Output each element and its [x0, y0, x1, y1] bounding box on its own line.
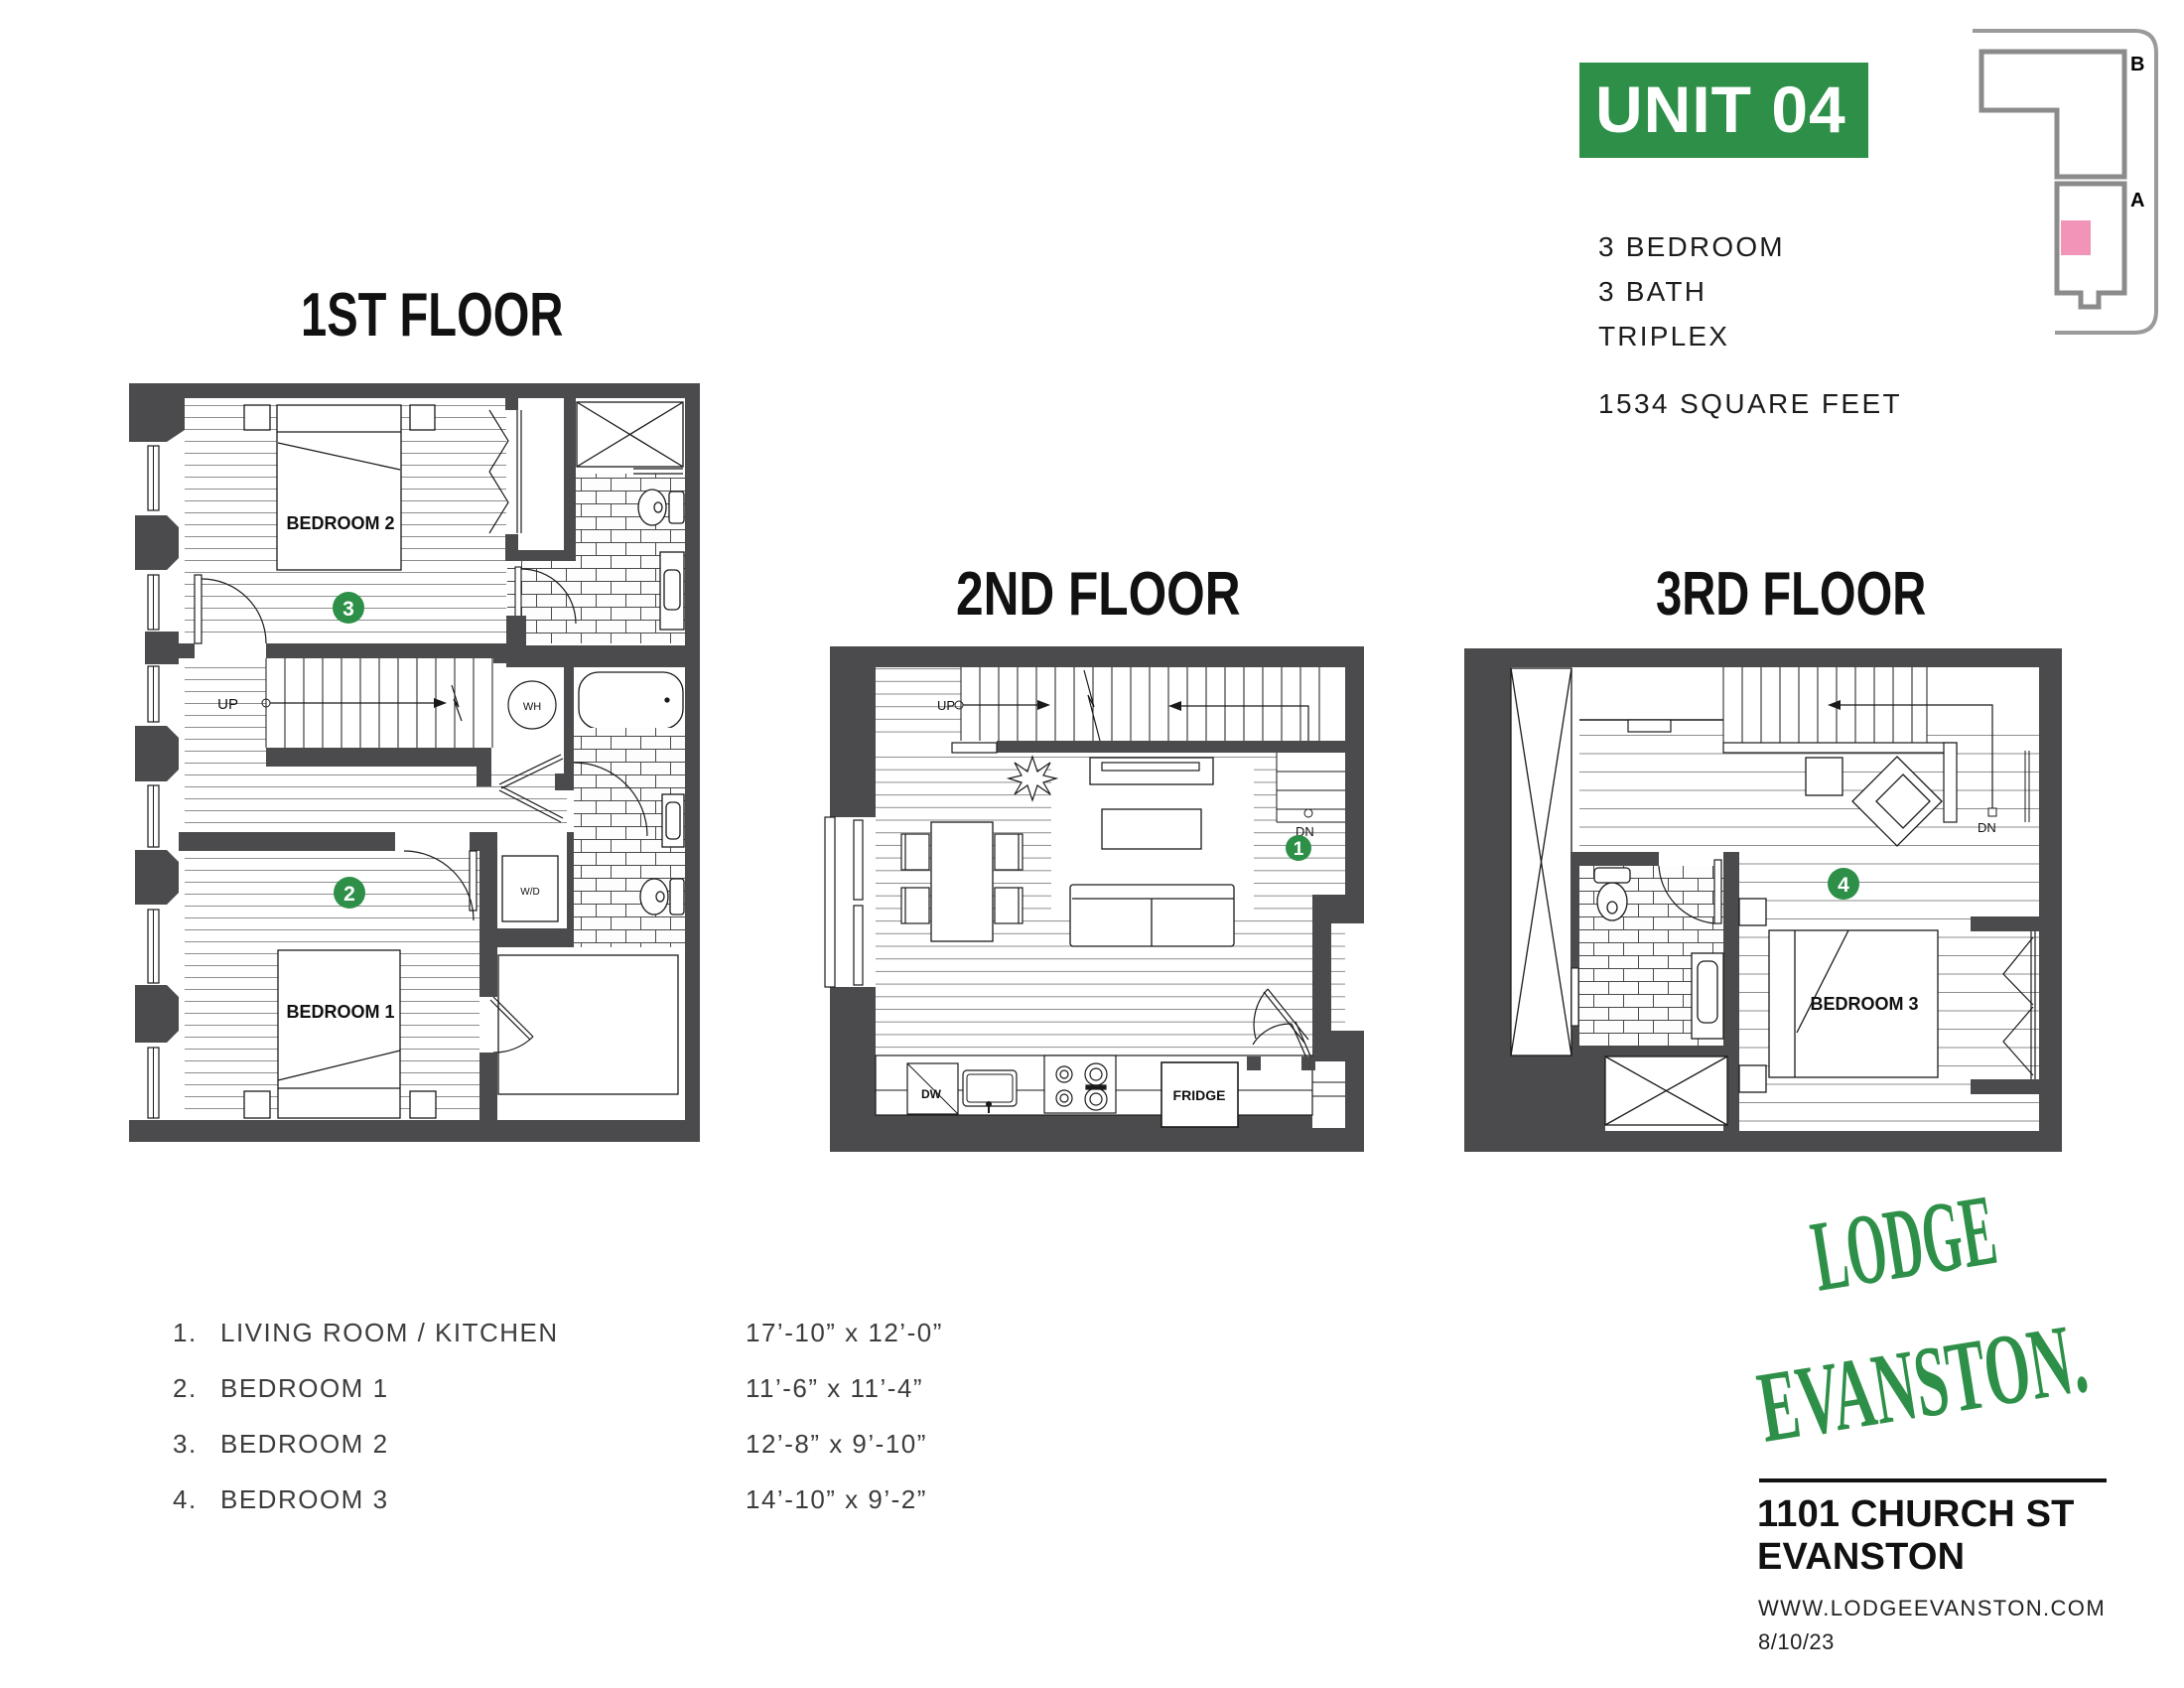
- svg-text:W/D: W/D: [520, 887, 539, 898]
- svg-text:2: 2: [343, 883, 355, 906]
- svg-text:4: 4: [1838, 874, 1849, 897]
- svg-text:LODGE: LODGE: [1805, 1174, 2003, 1313]
- svg-text:BEDROOM 3: BEDROOM 3: [1810, 994, 1918, 1014]
- svg-text:B: B: [2130, 54, 2144, 75]
- svg-text:DW: DW: [921, 1087, 942, 1101]
- svg-text:DN: DN: [1978, 820, 1996, 835]
- svg-text:BEDROOM 2: BEDROOM 2: [286, 513, 394, 533]
- svg-text:UP: UP: [937, 698, 955, 713]
- svg-text:UP: UP: [217, 696, 238, 713]
- svg-text:WH: WH: [523, 701, 541, 713]
- svg-text:EVANSTON.: EVANSTON.: [1751, 1301, 2094, 1463]
- svg-text:BEDROOM 1: BEDROOM 1: [286, 1002, 394, 1022]
- svg-text:1: 1: [1294, 839, 1304, 860]
- svg-text:3: 3: [342, 598, 354, 621]
- svg-text:A: A: [2130, 190, 2144, 211]
- svg-text:FRIDGE: FRIDGE: [1173, 1087, 1226, 1103]
